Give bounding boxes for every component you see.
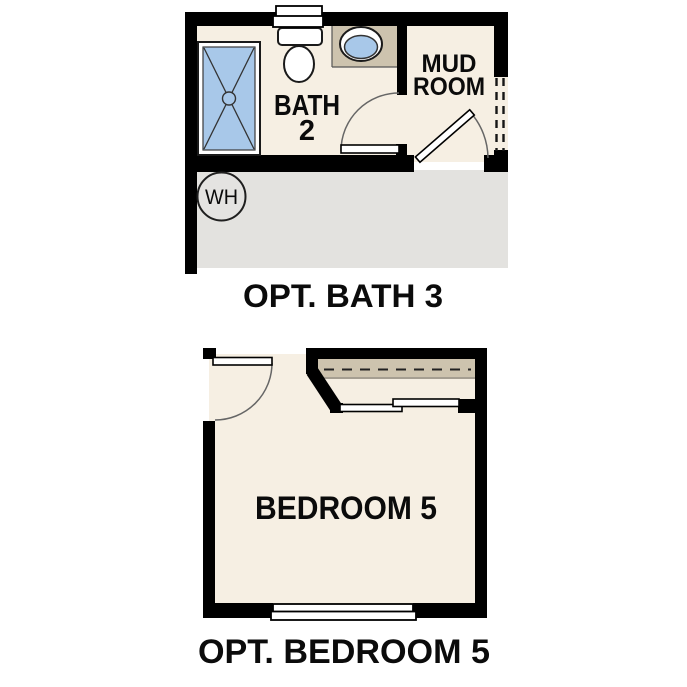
wall-right-upper <box>494 12 508 77</box>
wall-bottom-left-segment <box>185 155 414 172</box>
toilet-bowl <box>284 46 314 82</box>
bath-window-inner-pane <box>273 16 323 27</box>
bath2-label-line2: 2 <box>299 115 315 147</box>
bedroom-door-leaf <box>213 358 272 366</box>
closet-shelf <box>318 359 475 378</box>
bath-plan-caption: OPT. BATH 3 <box>243 278 443 314</box>
bedroom5-label: BEDROOM 5 <box>255 490 437 526</box>
wall-bottom-left-segment <box>203 603 273 618</box>
bedroom-floor <box>209 354 481 611</box>
closet-shelf-band <box>318 359 475 377</box>
wall-right <box>475 348 487 616</box>
water-heater-symbol: WH <box>198 173 246 221</box>
sink-icon <box>340 27 382 61</box>
wall-top <box>185 12 508 26</box>
floor-plan-page: WH BATH 2 MUD ROOM OPT. BATH 3 <box>0 0 687 687</box>
wall-left <box>203 421 215 616</box>
bath-door-leaf <box>341 145 399 153</box>
water-heater-label: WH <box>205 186 238 209</box>
bath-window <box>273 6 323 27</box>
wall-bath-mudroom-divider <box>397 26 407 95</box>
bedroom-window <box>271 604 416 620</box>
bedroom-window-inner-pane <box>271 612 416 621</box>
bedroom-plan-caption: OPT. BEDROOM 5 <box>198 633 490 671</box>
wall-closet-right-stub <box>458 399 475 413</box>
closet-sliding-door-right <box>393 399 459 407</box>
mudroom-label-line2: ROOM <box>413 73 485 101</box>
wall-left <box>185 12 197 274</box>
wall-top-main <box>307 348 487 359</box>
wall-bottom-right-segment <box>413 603 487 618</box>
opt-bath-3-plan: WH BATH 2 MUD ROOM OPT. BATH 3 <box>185 6 508 314</box>
shower-icon <box>198 42 260 155</box>
floor-plans-canvas: WH BATH 2 MUD ROOM OPT. BATH 3 <box>0 0 687 687</box>
opt-bedroom-5-plan: BEDROOM 5 OPT. BEDROOM 5 <box>198 348 490 671</box>
toilet-tank <box>278 28 322 45</box>
sink-basin <box>345 36 378 59</box>
shower-drain <box>223 92 236 105</box>
